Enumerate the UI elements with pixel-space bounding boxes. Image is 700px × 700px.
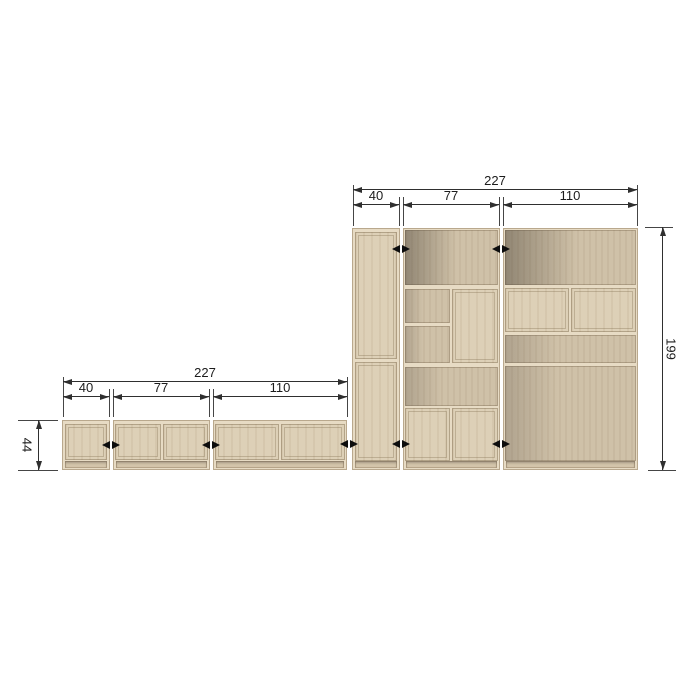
dimension-line-side-height bbox=[38, 420, 39, 470]
door bbox=[452, 289, 498, 363]
dimension-label-side-110: 110 bbox=[270, 380, 291, 395]
extension-line bbox=[648, 470, 676, 471]
open-compartment bbox=[505, 366, 636, 461]
wall-unit-module-77 bbox=[403, 228, 500, 470]
sideboard-module-77 bbox=[113, 420, 210, 470]
open-shelf-compartment bbox=[505, 335, 636, 363]
plinth bbox=[355, 461, 397, 468]
extension-line bbox=[399, 197, 400, 226]
double-arrow-icon bbox=[492, 439, 510, 449]
dimension-line-wall-110 bbox=[503, 204, 637, 205]
dimension-label-side-total: 227 bbox=[194, 365, 216, 380]
open-compartment bbox=[405, 230, 498, 285]
dimension-line-wall-40 bbox=[353, 204, 399, 205]
dimension-label-side-40: 40 bbox=[79, 380, 93, 395]
furniture-dimension-diagram: 227 40 77 110 199 227 40 77 110 44 bbox=[0, 0, 700, 700]
dimension-label-wall-110: 110 bbox=[560, 188, 581, 203]
door bbox=[215, 424, 279, 460]
open-compartment bbox=[505, 230, 636, 285]
dimension-line-side-total bbox=[63, 381, 347, 382]
extension-line bbox=[109, 389, 110, 417]
open-shelf-compartment bbox=[405, 326, 450, 363]
dimension-line-side-77 bbox=[113, 396, 209, 397]
door bbox=[281, 424, 345, 460]
double-arrow-icon bbox=[392, 439, 410, 449]
double-arrow-icon bbox=[340, 439, 358, 449]
double-arrow-icon bbox=[102, 440, 120, 450]
extension-line bbox=[347, 377, 348, 417]
door bbox=[65, 424, 107, 460]
open-compartment bbox=[405, 367, 498, 406]
wall-unit-module-110 bbox=[503, 228, 638, 470]
extension-line bbox=[18, 470, 58, 471]
plinth bbox=[116, 461, 207, 468]
door bbox=[115, 424, 161, 460]
dimension-label-wall-height: 199 bbox=[664, 338, 679, 360]
dimension-line-wall-total bbox=[353, 189, 637, 190]
dimension-line-side-110 bbox=[213, 396, 347, 397]
wall-cabinet-door bbox=[571, 288, 636, 332]
extension-line bbox=[499, 197, 500, 226]
extension-line bbox=[645, 227, 673, 228]
dimension-label-side-height: 44 bbox=[20, 438, 35, 452]
double-arrow-icon bbox=[202, 440, 220, 450]
wall-unit-module-40 bbox=[352, 228, 400, 470]
dimension-line-wall-77 bbox=[403, 204, 499, 205]
open-shelf-compartment bbox=[405, 289, 450, 323]
door bbox=[405, 408, 450, 461]
extension-line bbox=[209, 389, 210, 417]
sideboard-module-110 bbox=[213, 420, 347, 470]
plinth bbox=[216, 461, 344, 468]
extension-line bbox=[637, 185, 638, 226]
door bbox=[452, 408, 498, 461]
dimension-label-wall-40: 40 bbox=[369, 188, 383, 203]
double-arrow-icon bbox=[492, 244, 510, 254]
double-arrow-icon bbox=[392, 244, 410, 254]
plinth bbox=[506, 461, 635, 468]
door bbox=[355, 362, 397, 461]
plinth bbox=[406, 461, 497, 468]
door bbox=[355, 232, 397, 359]
dimension-label-side-77: 77 bbox=[154, 380, 168, 395]
dimension-label-wall-77: 77 bbox=[444, 188, 458, 203]
wall-cabinet-door bbox=[505, 288, 569, 332]
dimension-line-side-40 bbox=[63, 396, 109, 397]
plinth bbox=[65, 461, 107, 468]
dimension-label-wall-total: 227 bbox=[484, 173, 506, 188]
